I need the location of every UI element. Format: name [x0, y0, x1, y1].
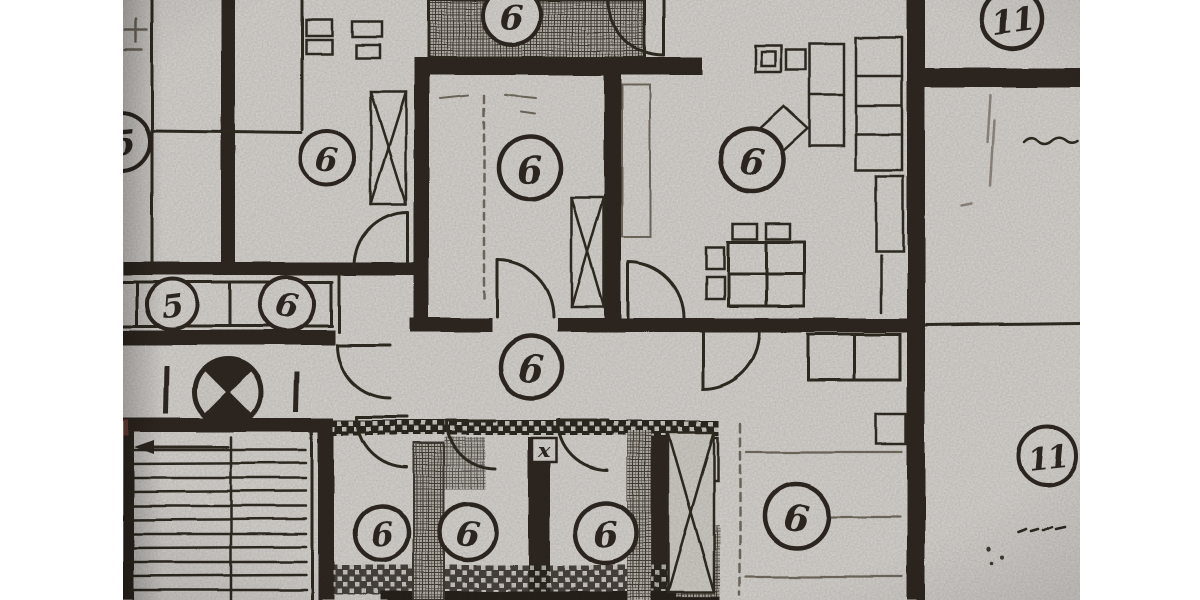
floor-plan-photo: 5 6 6 6 6	[0, 0, 1200, 600]
floor-plan-canvas: 5 6 6 6 6	[0, 0, 1200, 600]
photo-vignette	[123, 0, 1080, 600]
page-margin-left	[0, 0, 123, 600]
page-margin-right	[1080, 0, 1200, 600]
